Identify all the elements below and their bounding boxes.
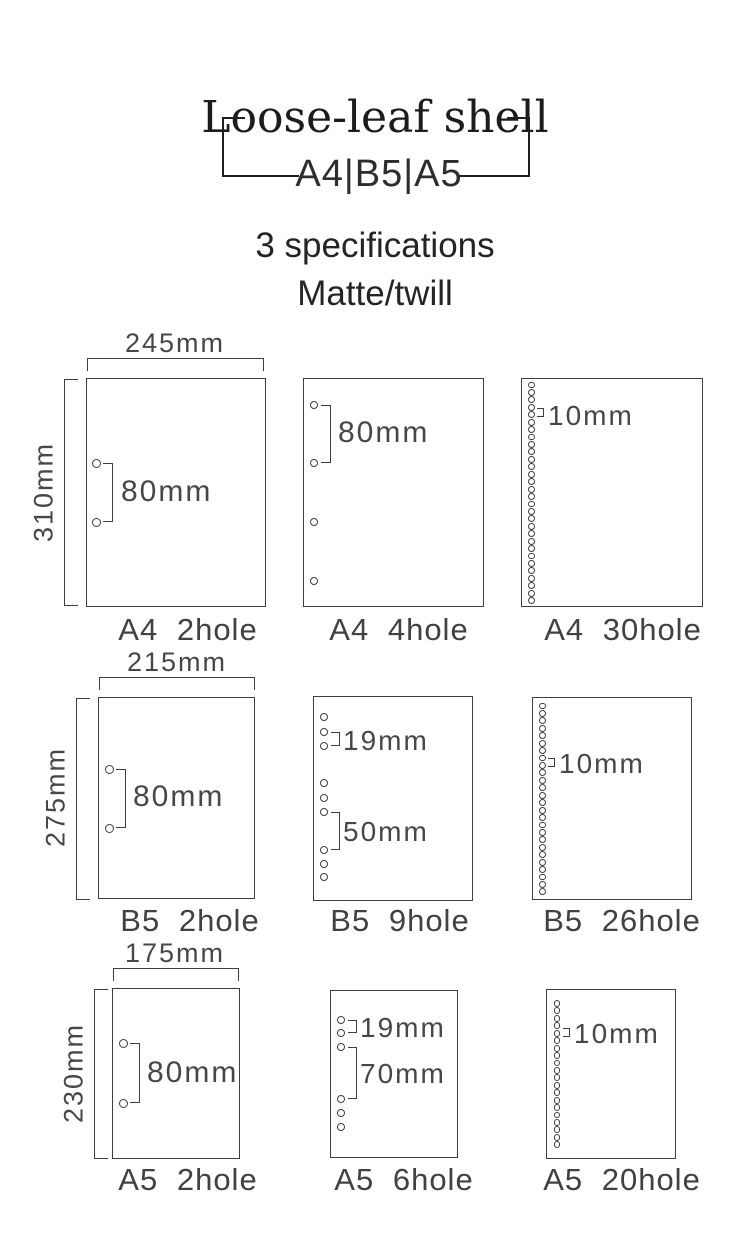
hole-pitch-label: 10mm [574,1018,660,1050]
hole [554,1082,561,1089]
hole-pitch-bracket [563,1028,570,1037]
loose-leaf-shell-infographic: Loose-leaf shell A4|B5|A5 3 specificatio… [0,0,750,1235]
hole [554,1060,561,1067]
hole [554,1126,561,1133]
hole [554,1045,561,1052]
hole [554,1134,561,1141]
panel-a5-20hole: 10mm A5 20hole [0,0,750,1235]
hole [554,1037,561,1044]
hole [554,1097,561,1104]
hole [554,1089,561,1096]
panel-caption: A5 20hole [543,1162,701,1198]
sheet-outline [546,989,676,1159]
hole [554,1015,561,1022]
hole [554,1052,561,1059]
hole [554,1074,561,1081]
hole [554,1030,561,1037]
hole [554,1112,561,1119]
hole [554,1007,561,1014]
hole [554,1119,561,1126]
hole [554,1022,561,1029]
hole-column [554,1000,561,1148]
hole [554,1000,561,1007]
hole [554,1141,561,1148]
hole [554,1067,561,1074]
hole [554,1104,561,1111]
